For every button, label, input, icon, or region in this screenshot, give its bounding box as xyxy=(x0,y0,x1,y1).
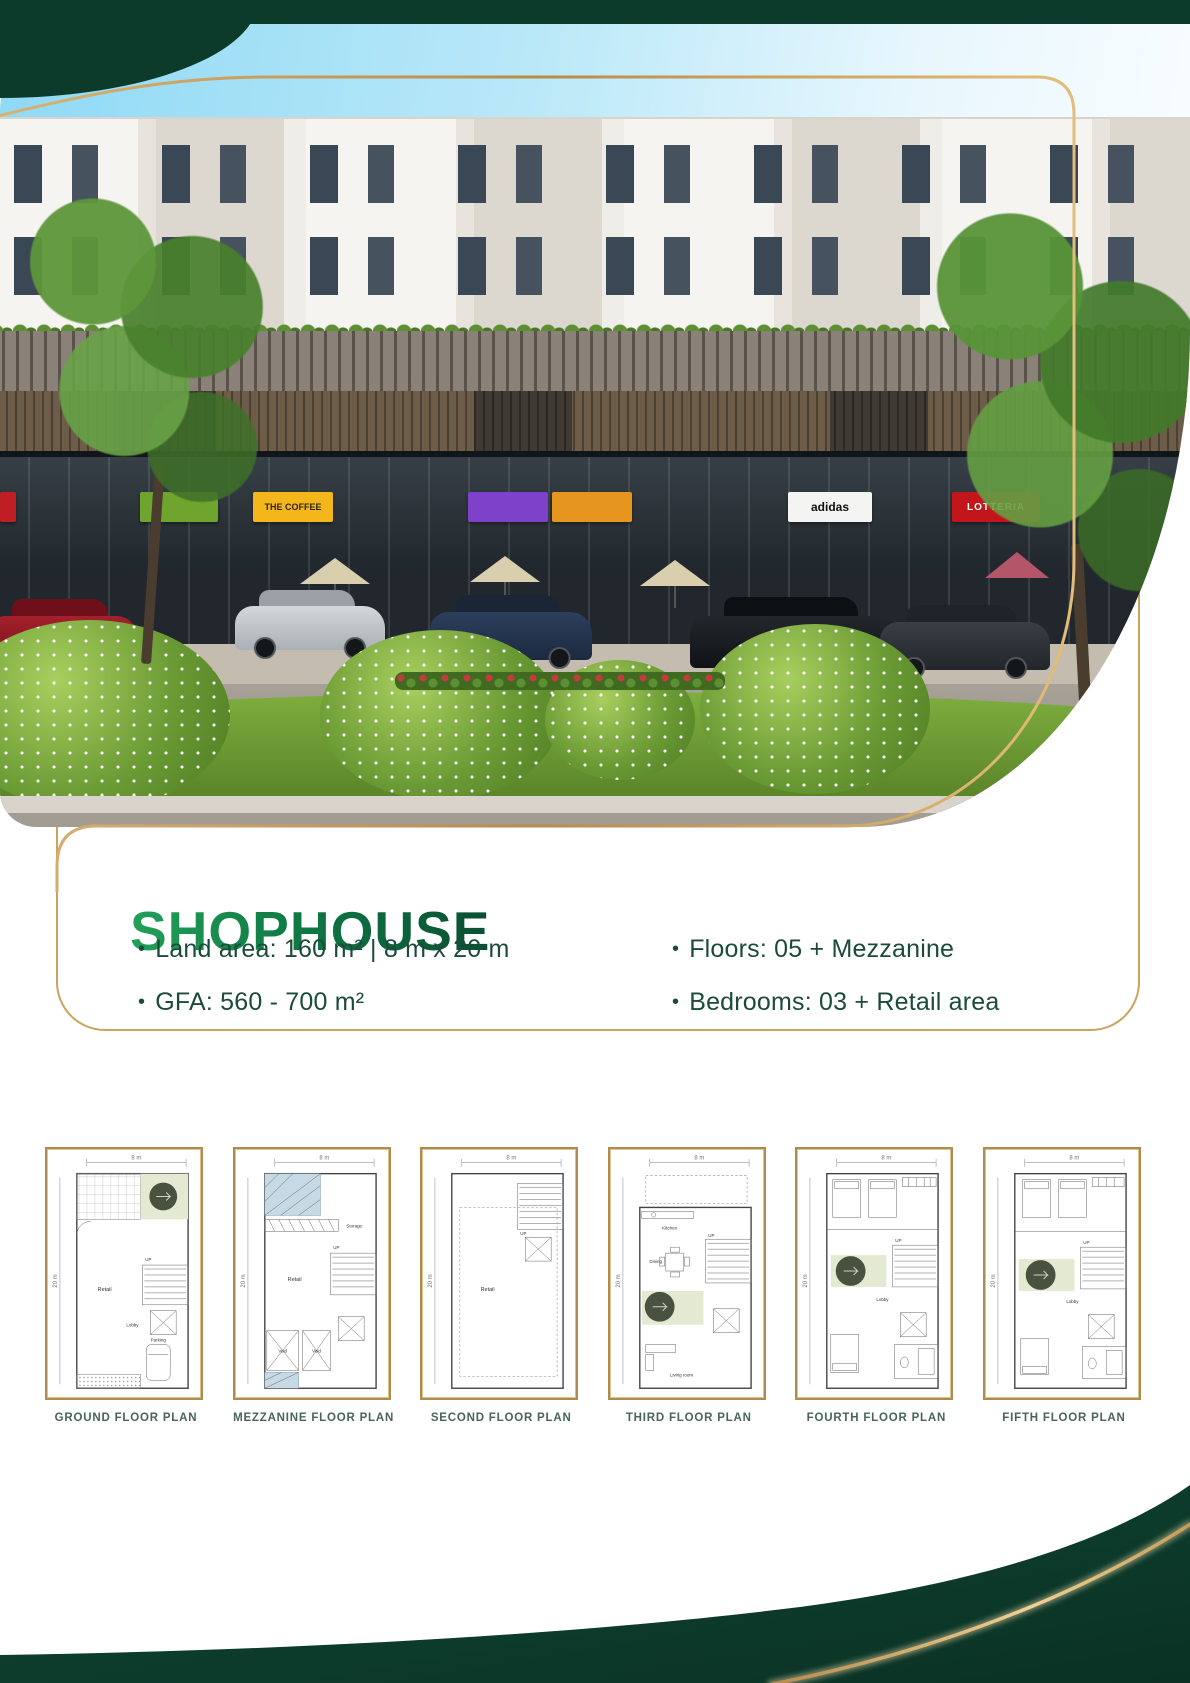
sign-orange xyxy=(552,492,632,522)
bullet: • xyxy=(672,938,679,960)
plan-cell-ground: 8 m 20 m Retail Lobby UP xyxy=(45,1147,207,1424)
fifth-floor-plan-drawing: 8 m 20 m Lobby U xyxy=(985,1149,1139,1398)
mezzanine-floor-plan-drawing: 8 m 20 m Retail Storage UP xyxy=(235,1149,389,1398)
svg-text:20 m: 20 m xyxy=(241,1274,247,1287)
plan-caption-fourth: FOURTH FLOOR PLAN xyxy=(795,1412,957,1424)
svg-text:8 m: 8 m xyxy=(1069,1156,1079,1162)
svg-text:Dining: Dining xyxy=(649,1259,662,1264)
svg-text:UP: UP xyxy=(333,1245,339,1250)
svg-text:Living room: Living room xyxy=(670,1372,693,1377)
sign-adidas-label: adidas xyxy=(811,500,849,514)
svg-text:UP: UP xyxy=(896,1238,902,1243)
top-green-bar xyxy=(0,0,1190,24)
plan-card-third: 8 m 20 m Kitchen Dining xyxy=(608,1147,766,1400)
svg-text:UP: UP xyxy=(1083,1240,1089,1245)
sign-adidas: adidas xyxy=(788,492,872,522)
plan-card-fourth: 8 m 20 m Lobby U xyxy=(795,1147,953,1400)
svg-text:Parking: Parking xyxy=(151,1338,167,1343)
svg-text:20 m: 20 m xyxy=(53,1274,59,1287)
sign-lotteria-label: LOTTERIA xyxy=(967,502,1025,513)
svg-text:UP: UP xyxy=(708,1233,714,1238)
bullet: • xyxy=(672,991,679,1013)
bush xyxy=(700,624,930,794)
svg-text:Lobby: Lobby xyxy=(1066,1299,1079,1304)
flower-bed xyxy=(395,672,725,690)
plan-cell-second: 8 m 20 m Retail UP SECOND FLOOR PLAN xyxy=(420,1147,582,1424)
bottom-green-sweep xyxy=(0,1423,1190,1683)
svg-text:UP: UP xyxy=(520,1231,526,1236)
second-floor-plan-drawing: 8 m 20 m Retail UP xyxy=(422,1149,576,1398)
car-silver xyxy=(235,606,385,650)
building-upper-floors xyxy=(0,119,1190,331)
fourth-floor-plan-drawing: 8 m 20 m Lobby U xyxy=(797,1149,951,1398)
plan-caption-third: THIRD FLOOR PLAN xyxy=(608,1412,770,1424)
svg-text:20 m: 20 m xyxy=(991,1274,997,1287)
spec-bedrooms: •Bedrooms: 03 + Retail area xyxy=(672,988,999,1017)
bush xyxy=(320,630,560,800)
spec-bedrooms-text: Bedrooms: 03 + Retail area xyxy=(689,988,999,1016)
svg-text:Void: Void xyxy=(312,1348,321,1353)
svg-text:8 m: 8 m xyxy=(131,1156,141,1162)
spec-land-area: •Land area: 160 m² | 8 m x 20 m xyxy=(138,935,510,964)
plan-caption-second: SECOND FLOOR PLAN xyxy=(420,1412,582,1424)
plan-cell-third: 8 m 20 m Kitchen Dining xyxy=(608,1147,770,1424)
plan-card-ground: 8 m 20 m Retail Lobby UP xyxy=(45,1147,203,1400)
sign-purple xyxy=(468,492,548,522)
plan-caption-mezzanine: MEZZANINE FLOOR PLAN xyxy=(233,1412,395,1424)
svg-text:Lobby: Lobby xyxy=(877,1297,890,1302)
plan-cell-fourth: 8 m 20 m Lobby U xyxy=(795,1147,957,1424)
svg-text:20 m: 20 m xyxy=(428,1274,434,1287)
svg-text:Void: Void xyxy=(278,1348,287,1353)
sign-the-coffee-label: THE COFFEE xyxy=(264,502,321,512)
svg-text:8 m: 8 m xyxy=(507,1156,517,1162)
svg-text:Lobby: Lobby xyxy=(126,1323,139,1328)
svg-text:8 m: 8 m xyxy=(694,1156,704,1162)
svg-text:Retail: Retail xyxy=(98,1287,112,1293)
spec-land-area-text: Land area: 160 m² | 8 m x 20 m xyxy=(155,935,509,963)
plan-caption-fifth: FIFTH FLOOR PLAN xyxy=(983,1412,1145,1424)
svg-text:8 m: 8 m xyxy=(882,1156,892,1162)
window-row xyxy=(0,237,1190,295)
spec-gfa: •GFA: 560 - 700 m² xyxy=(138,988,364,1017)
floor-plans-row: 8 m 20 m Retail Lobby UP xyxy=(45,1147,1145,1424)
sign-lotteria: LOTTERIA xyxy=(952,492,1040,522)
svg-text:Kitchen: Kitchen xyxy=(662,1225,677,1230)
plan-card-mezzanine: 8 m 20 m Retail Storage UP xyxy=(233,1147,391,1400)
plan-caption-ground: GROUND FLOOR PLAN xyxy=(45,1412,207,1424)
bullet: • xyxy=(138,991,145,1013)
foreground-road xyxy=(0,813,1190,827)
balcony-band xyxy=(0,331,1190,391)
plan-card-fifth: 8 m 20 m Lobby U xyxy=(983,1147,1141,1400)
ground-floor-plan-drawing: 8 m 20 m Retail Lobby UP xyxy=(47,1149,201,1398)
svg-text:20 m: 20 m xyxy=(803,1274,809,1287)
svg-text:UP: UP xyxy=(145,1257,151,1262)
wood-slat-band xyxy=(0,391,1190,457)
window-row xyxy=(0,145,1190,203)
svg-text:20 m: 20 m xyxy=(616,1274,622,1287)
sign-partial-left xyxy=(0,492,16,522)
svg-text:Retail: Retail xyxy=(481,1287,495,1293)
svg-text:Storage: Storage xyxy=(346,1223,362,1228)
spec-floors: •Floors: 05 + Mezzanine xyxy=(672,935,954,964)
brochure-page: THE COFFEE adidas LOTTERIA xyxy=(0,0,1190,1683)
plan-cell-mezzanine: 8 m 20 m Retail Storage UP xyxy=(233,1147,395,1424)
curb xyxy=(0,796,1190,814)
spec-floors-text: Floors: 05 + Mezzanine xyxy=(689,935,954,963)
third-floor-plan-drawing: 8 m 20 m Kitchen Dining xyxy=(610,1149,764,1398)
svg-text:Retail: Retail xyxy=(287,1277,301,1283)
sign-the-coffee: THE COFFEE xyxy=(253,492,333,522)
building-rendering-photo: THE COFFEE adidas LOTTERIA xyxy=(0,24,1190,827)
spec-gfa-text: GFA: 560 - 700 m² xyxy=(155,988,364,1016)
plan-cell-fifth: 8 m 20 m Lobby U xyxy=(983,1147,1145,1424)
svg-text:8 m: 8 m xyxy=(319,1156,329,1162)
plan-card-second: 8 m 20 m Retail UP xyxy=(420,1147,578,1400)
bullet: • xyxy=(138,938,145,960)
